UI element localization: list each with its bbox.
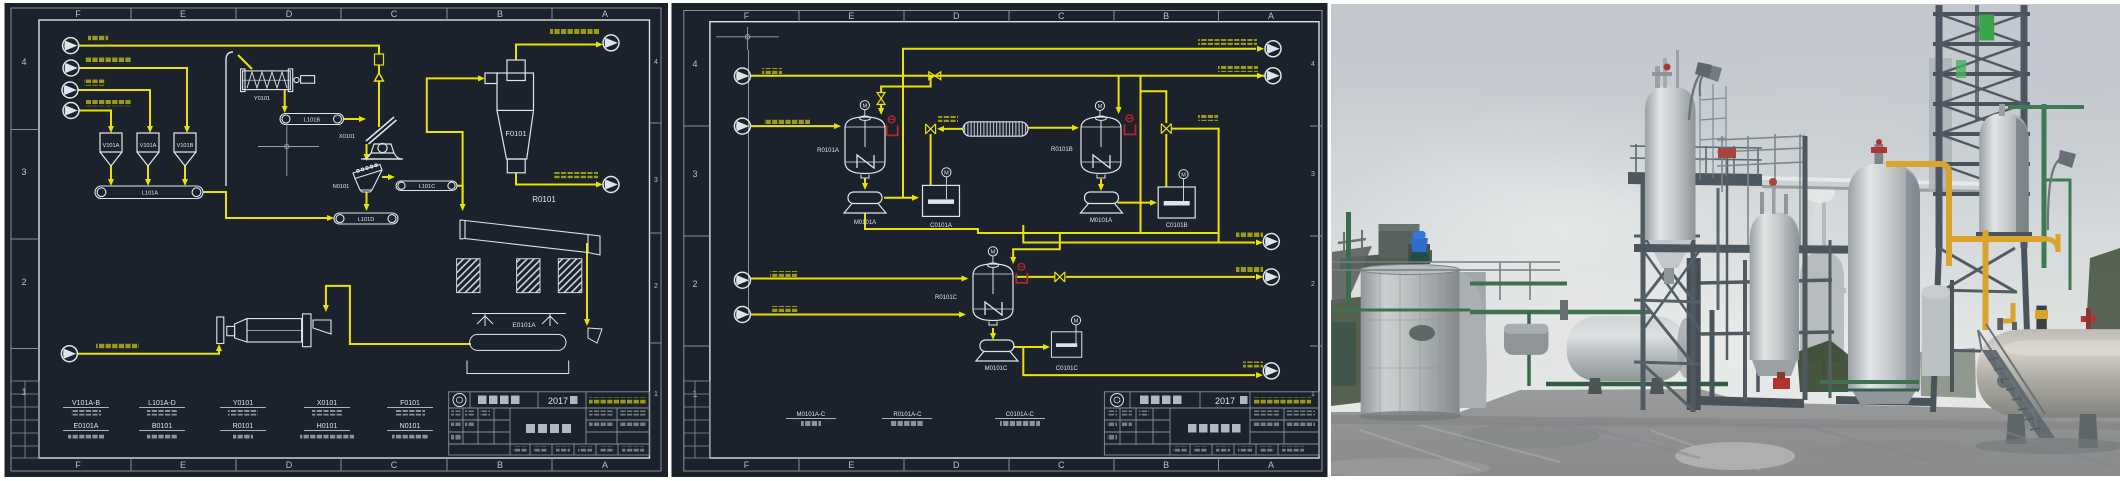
svg-text:L101D: L101D bbox=[358, 217, 374, 223]
svg-text:B: B bbox=[1163, 11, 1169, 21]
svg-text:2: 2 bbox=[1311, 281, 1315, 288]
svg-text:C0101C: C0101C bbox=[1056, 366, 1079, 372]
svg-text:L101A-D: L101A-D bbox=[148, 400, 176, 407]
svg-text:A: A bbox=[1268, 460, 1274, 470]
svg-text:Y0101: Y0101 bbox=[233, 400, 253, 407]
svg-text:4: 4 bbox=[654, 59, 658, 66]
svg-text:C: C bbox=[391, 460, 398, 470]
svg-text:F: F bbox=[744, 11, 750, 21]
svg-text:E: E bbox=[848, 460, 854, 470]
svg-text:D: D bbox=[953, 460, 960, 470]
svg-text:A: A bbox=[602, 9, 608, 19]
svg-text:M0101A: M0101A bbox=[854, 220, 876, 226]
svg-text:C: C bbox=[391, 9, 398, 19]
svg-text:D: D bbox=[286, 460, 293, 470]
svg-text:E: E bbox=[848, 11, 854, 21]
svg-text:3: 3 bbox=[692, 169, 697, 179]
svg-text:F: F bbox=[75, 9, 81, 19]
svg-text:E0101A: E0101A bbox=[512, 322, 536, 329]
svg-text:R0101B: R0101B bbox=[1051, 147, 1073, 153]
svg-text:D: D bbox=[953, 11, 960, 21]
svg-text:V101B: V101B bbox=[177, 143, 194, 149]
svg-text:3: 3 bbox=[21, 167, 26, 177]
svg-text:A: A bbox=[602, 460, 608, 470]
svg-text:2017: 2017 bbox=[548, 396, 568, 406]
svg-text:E: E bbox=[180, 9, 186, 19]
svg-text:R0101: R0101 bbox=[532, 195, 556, 204]
svg-text:D: D bbox=[286, 9, 293, 19]
svg-text:A: A bbox=[1268, 11, 1274, 21]
svg-text:V101A: V101A bbox=[103, 143, 120, 149]
svg-text:N0101: N0101 bbox=[333, 184, 349, 190]
svg-text:X0101: X0101 bbox=[317, 400, 337, 407]
svg-text:3: 3 bbox=[654, 177, 658, 184]
svg-text:N0101: N0101 bbox=[400, 423, 421, 430]
svg-text:M0101C: M0101C bbox=[985, 366, 1008, 372]
svg-text:C: C bbox=[1058, 11, 1065, 21]
svg-text:B0101: B0101 bbox=[152, 423, 172, 430]
svg-text:H0101: H0101 bbox=[317, 423, 338, 430]
svg-text:3: 3 bbox=[1311, 171, 1315, 178]
svg-text:L101C: L101C bbox=[419, 184, 435, 190]
svg-text:4: 4 bbox=[692, 59, 697, 69]
svg-text:M0101A: M0101A bbox=[1090, 218, 1112, 224]
svg-text:1: 1 bbox=[654, 391, 658, 398]
svg-text:E0101A: E0101A bbox=[74, 423, 99, 430]
svg-text:B: B bbox=[497, 460, 503, 470]
svg-text:X0101: X0101 bbox=[339, 134, 355, 140]
svg-text:R0101A: R0101A bbox=[817, 148, 839, 154]
svg-text:F: F bbox=[75, 460, 81, 470]
svg-text:V101A-B: V101A-B bbox=[72, 400, 100, 407]
svg-text:R0101C: R0101C bbox=[935, 295, 958, 301]
svg-text:4: 4 bbox=[1311, 61, 1315, 68]
svg-text:2: 2 bbox=[21, 277, 26, 287]
svg-text:L101A: L101A bbox=[142, 191, 158, 197]
svg-text:F0101: F0101 bbox=[400, 400, 420, 407]
svg-text:1: 1 bbox=[21, 387, 26, 397]
svg-text:R0101: R0101 bbox=[233, 423, 254, 430]
svg-text:4: 4 bbox=[21, 57, 26, 67]
svg-text:B: B bbox=[497, 9, 503, 19]
svg-text:L101B: L101B bbox=[304, 118, 320, 124]
svg-text:R0101A-C: R0101A-C bbox=[893, 412, 922, 418]
svg-text:V101A: V101A bbox=[140, 143, 157, 149]
svg-text:E: E bbox=[180, 460, 186, 470]
svg-text:2: 2 bbox=[654, 283, 658, 290]
svg-text:2017: 2017 bbox=[1215, 396, 1235, 406]
svg-text:C0101A-C: C0101A-C bbox=[1006, 412, 1035, 418]
svg-text:B: B bbox=[1163, 460, 1169, 470]
svg-text:C0101A: C0101A bbox=[930, 223, 952, 229]
svg-text:F0101: F0101 bbox=[505, 129, 526, 138]
svg-text:2: 2 bbox=[692, 279, 697, 289]
svg-text:C: C bbox=[1058, 460, 1065, 470]
svg-text:F: F bbox=[744, 460, 750, 470]
svg-text:Y0101: Y0101 bbox=[254, 96, 270, 102]
svg-text:M0101A-C: M0101A-C bbox=[797, 412, 826, 418]
svg-text:C0101B: C0101B bbox=[1166, 223, 1188, 229]
